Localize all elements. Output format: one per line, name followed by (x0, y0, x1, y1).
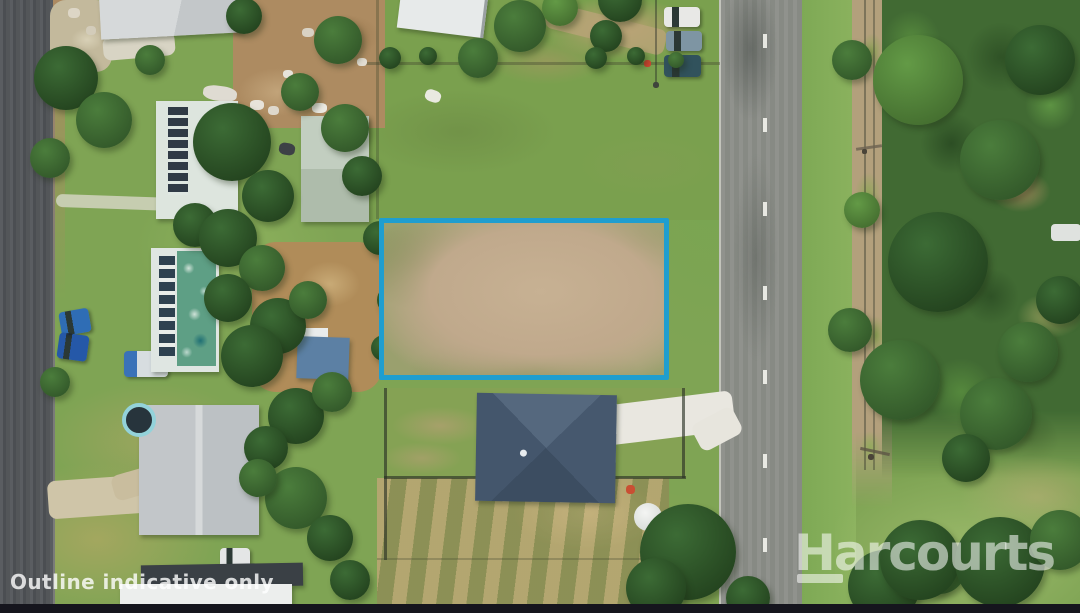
tree (193, 103, 271, 181)
fence-line (655, 0, 657, 86)
tree (76, 92, 132, 148)
fence-line (377, 558, 667, 560)
debris-object (626, 485, 635, 494)
tree (281, 73, 319, 111)
car (666, 31, 702, 51)
tree (828, 308, 872, 352)
tree (960, 120, 1040, 200)
tree (627, 47, 645, 65)
tree (307, 515, 353, 561)
car (56, 332, 89, 362)
debris-object (644, 60, 651, 67)
tree (135, 45, 165, 75)
tree (942, 434, 990, 482)
tree (1005, 25, 1075, 95)
tree (844, 192, 880, 228)
tree (342, 156, 382, 196)
tree (314, 16, 362, 64)
harcourts-logo-underline (797, 574, 843, 583)
tree (221, 325, 283, 387)
debris-object (68, 8, 80, 18)
tree (239, 459, 277, 497)
tree (998, 322, 1058, 382)
tree (30, 138, 70, 178)
solar-panels (168, 107, 188, 195)
tree (242, 170, 294, 222)
tree (330, 560, 370, 600)
tree (668, 52, 684, 68)
tree (458, 38, 498, 78)
caravan (1051, 224, 1080, 241)
tree (873, 35, 963, 125)
fence-line (384, 388, 387, 560)
tree (419, 47, 437, 65)
tree (379, 47, 401, 69)
car (664, 7, 700, 27)
tree (860, 340, 940, 420)
tree (204, 274, 252, 322)
letterbox-bar (0, 604, 1080, 613)
roof-vent (520, 450, 527, 457)
tree (1036, 276, 1080, 324)
tree (289, 281, 327, 319)
aerial-photo: Harcourts Outline indicative only (0, 0, 1080, 613)
debris-object (268, 106, 279, 115)
tree (40, 367, 70, 397)
debris-object (653, 82, 659, 88)
tree (832, 40, 872, 80)
tree (585, 47, 607, 69)
debris-object (862, 149, 867, 154)
debris-object (357, 58, 367, 66)
tree (312, 372, 352, 412)
trampoline (122, 403, 156, 437)
road-center-line (763, 34, 767, 609)
tree (321, 104, 369, 152)
main-road (719, 0, 806, 613)
solar-panels (159, 256, 175, 356)
debris-object (86, 26, 96, 35)
tree (888, 212, 988, 312)
debris-object (868, 454, 874, 460)
property-boundary-outline (379, 218, 669, 380)
fence-line (682, 388, 685, 478)
tree (494, 0, 546, 52)
debris-object (302, 28, 314, 37)
house-roof-dark-blue (475, 393, 617, 503)
harcourts-watermark: Harcourts (794, 528, 1054, 578)
outline-disclaimer-text: Outline indicative only (10, 570, 274, 594)
